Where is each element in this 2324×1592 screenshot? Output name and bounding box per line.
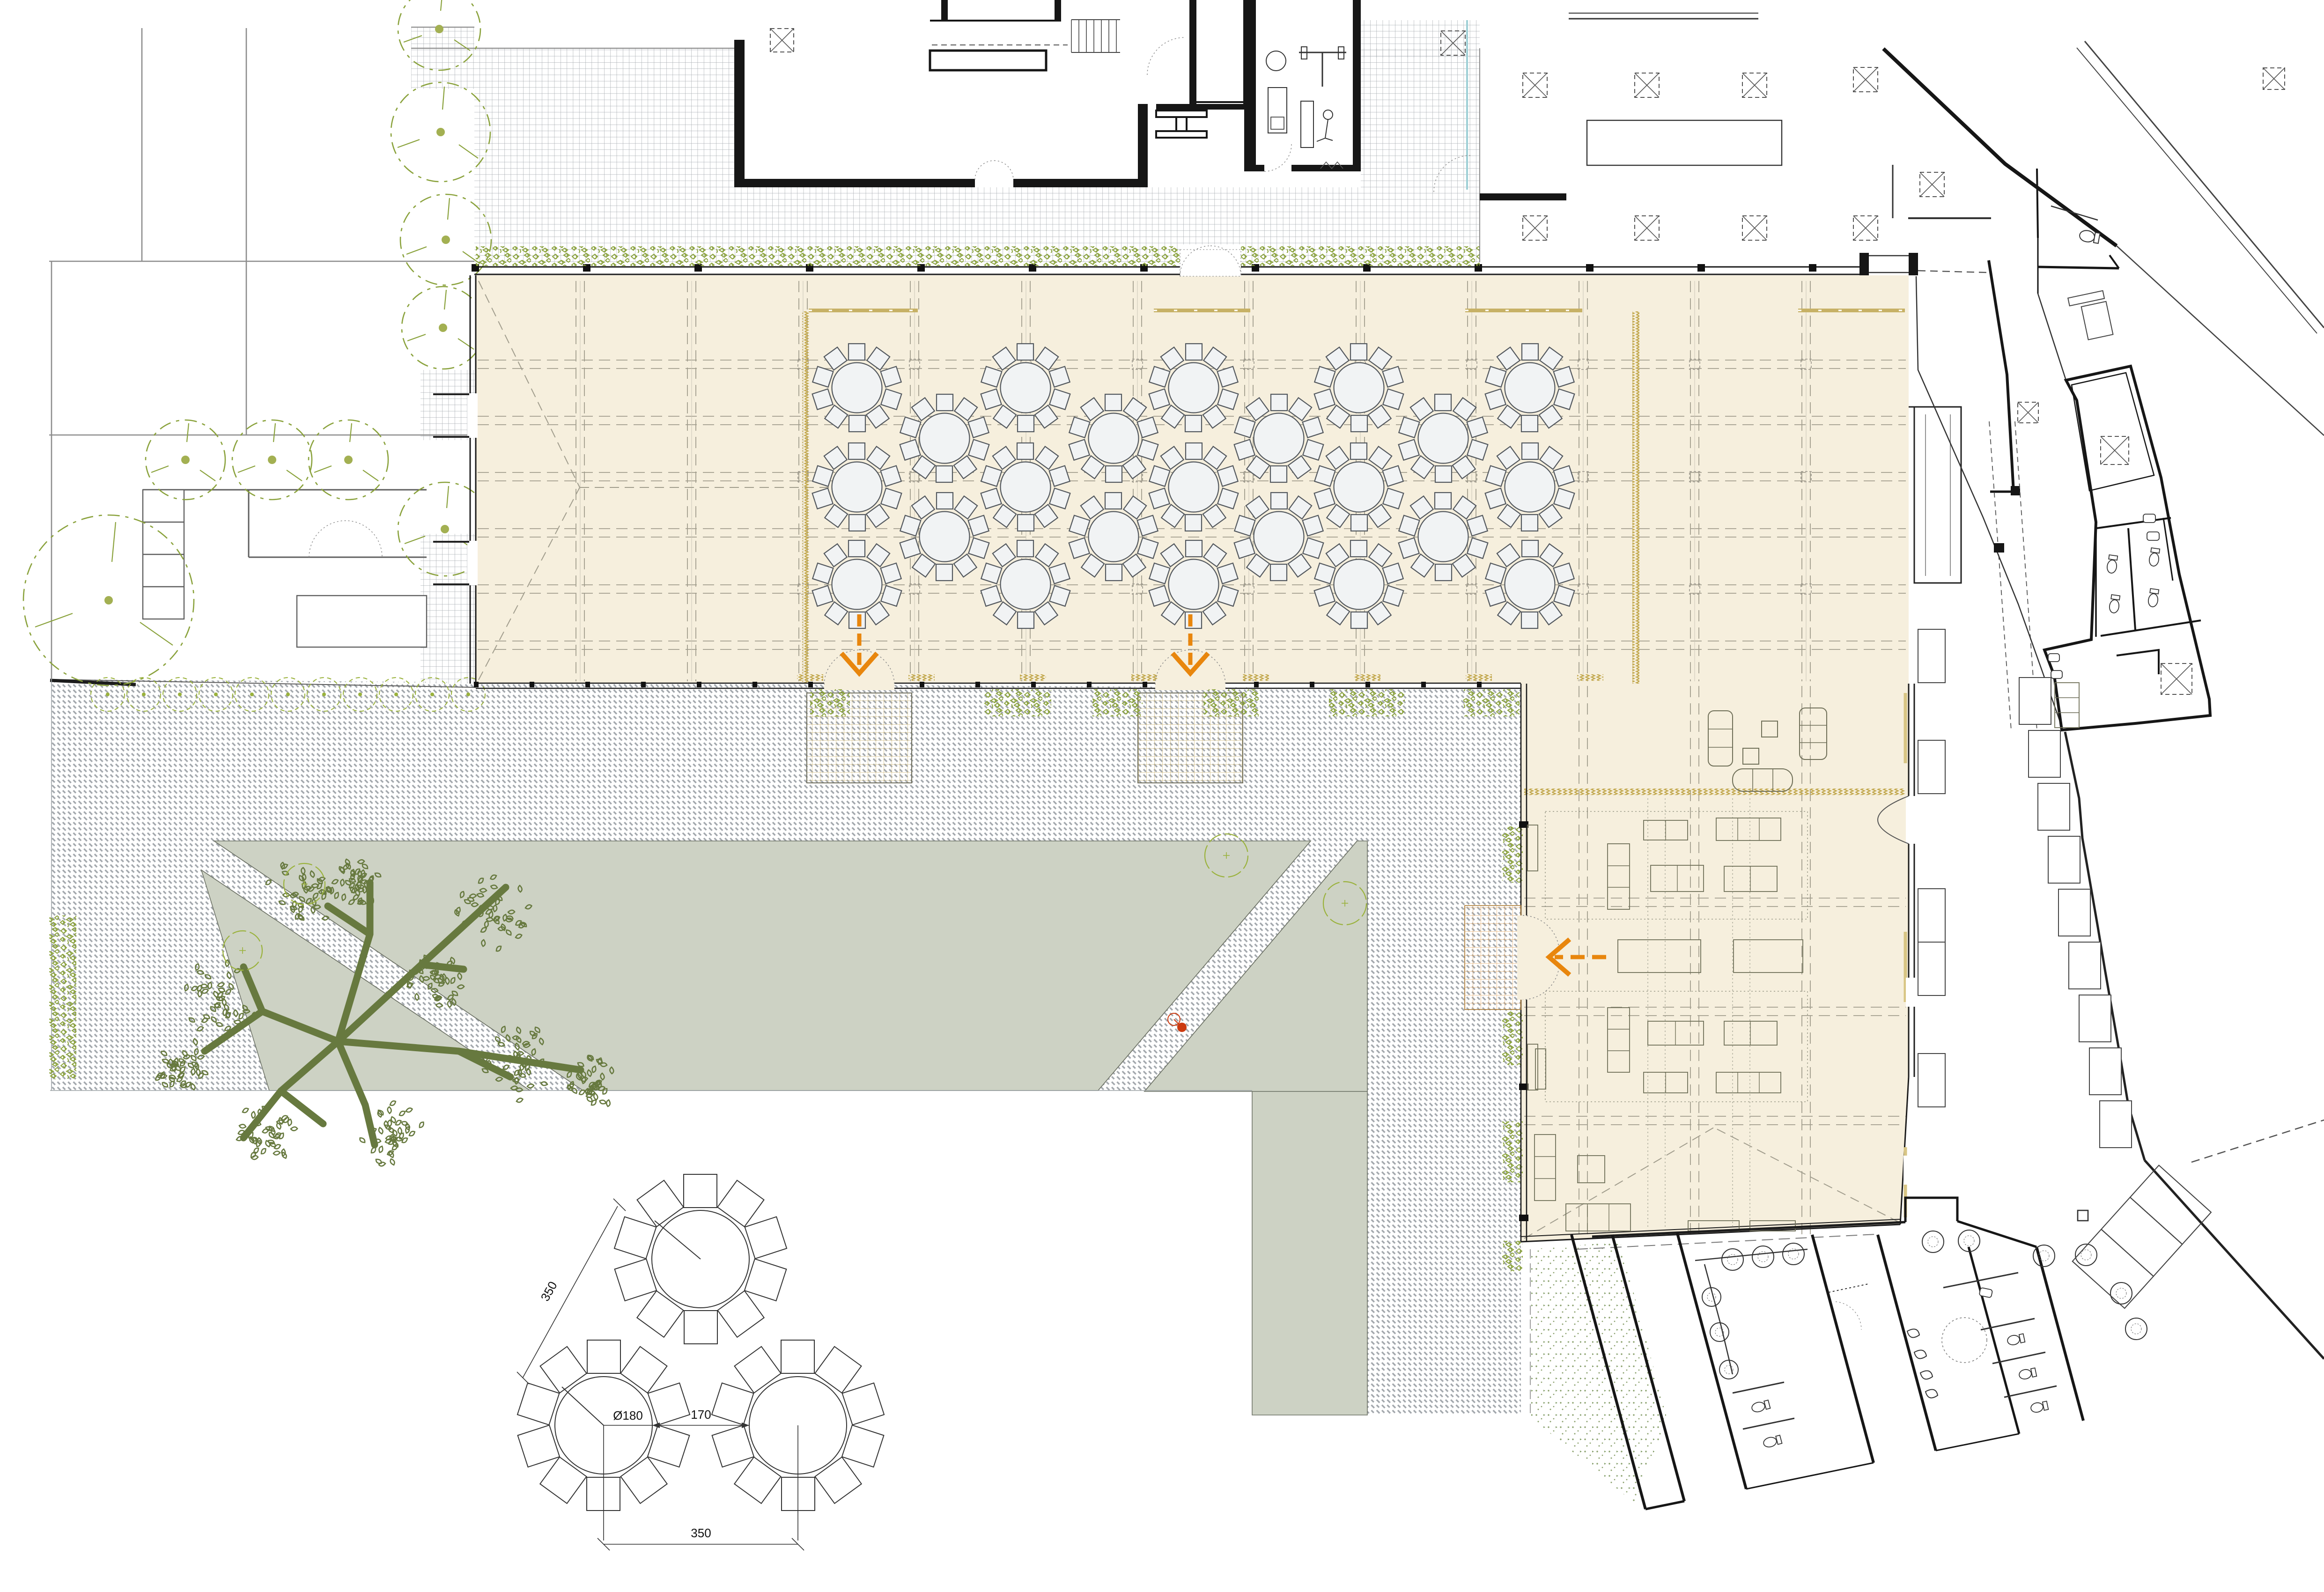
svg-text:Ø180: Ø180 <box>613 1408 643 1422</box>
svg-text:170: 170 <box>691 1408 711 1422</box>
svg-text:350: 350 <box>691 1526 711 1540</box>
